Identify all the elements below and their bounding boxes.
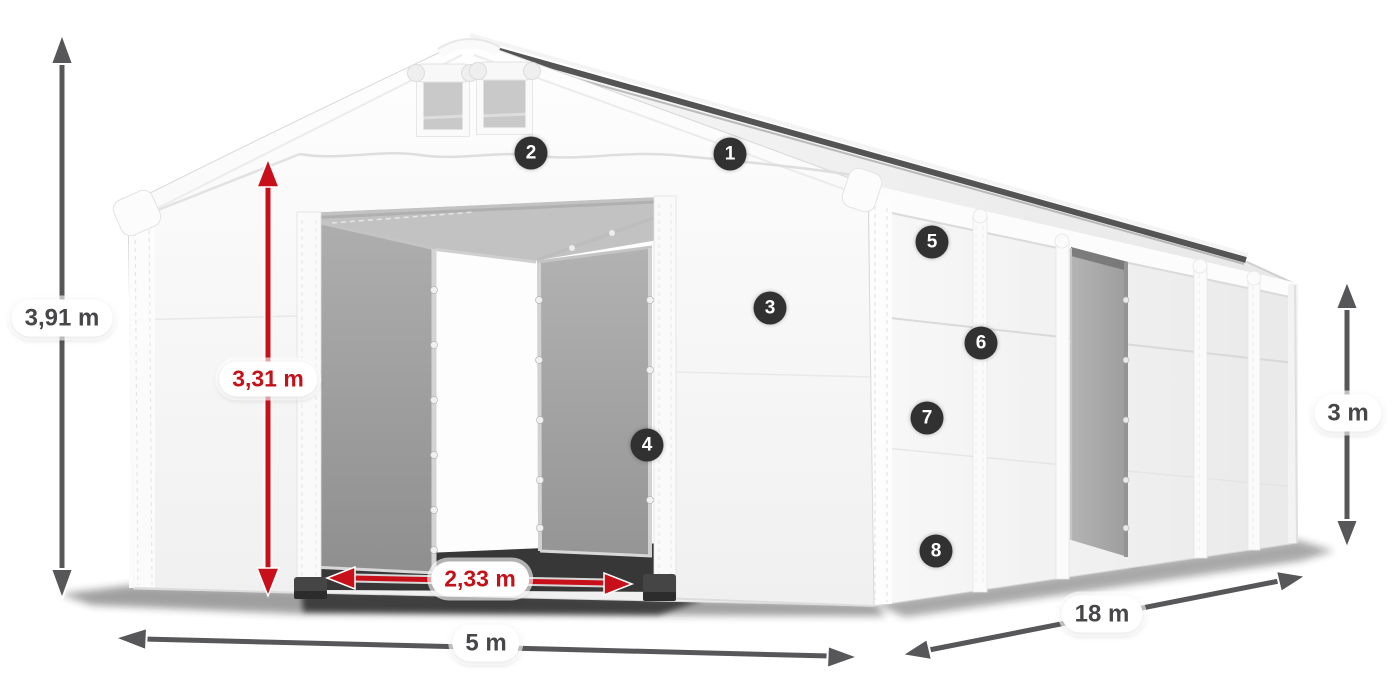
vent-window-right [470, 62, 541, 135]
tent-dimension-diagram: 3,91 m 3,31 m 2,33 m 5 m 18 m 3 m 1 2 3 … [0, 0, 1400, 700]
front-opening [302, 197, 665, 592]
part-marker-8: 8 [920, 535, 953, 568]
dimension-label-inner-height: 3,31 m [219, 362, 317, 397]
dimension-label-total-height: 3,91 m [12, 300, 113, 337]
front-door-left-leaf [309, 221, 438, 573]
dimension-label-length: 18 m [1062, 596, 1143, 633]
part-marker-4: 4 [631, 429, 664, 462]
right-door-jamb [654, 196, 676, 598]
front-door-right-leaf [536, 247, 654, 556]
part-marker-7: 7 [911, 402, 944, 435]
tent-illustration [0, 0, 1400, 700]
vent-window-left [408, 64, 479, 137]
dimension-label-front-width: 5 m [452, 625, 519, 662]
part-marker-2: 2 [515, 137, 548, 170]
dimension-label-door-width: 2,33 m [431, 562, 529, 597]
side-door [1071, 247, 1129, 557]
part-marker-3: 3 [754, 292, 787, 325]
dimension-label-side-height: 3 m [1314, 395, 1381, 432]
front-left-corner-trim [129, 208, 155, 588]
part-marker-5: 5 [916, 226, 949, 259]
part-marker-1: 1 [714, 138, 747, 171]
part-marker-6: 6 [965, 327, 998, 360]
left-door-jamb [297, 212, 321, 597]
